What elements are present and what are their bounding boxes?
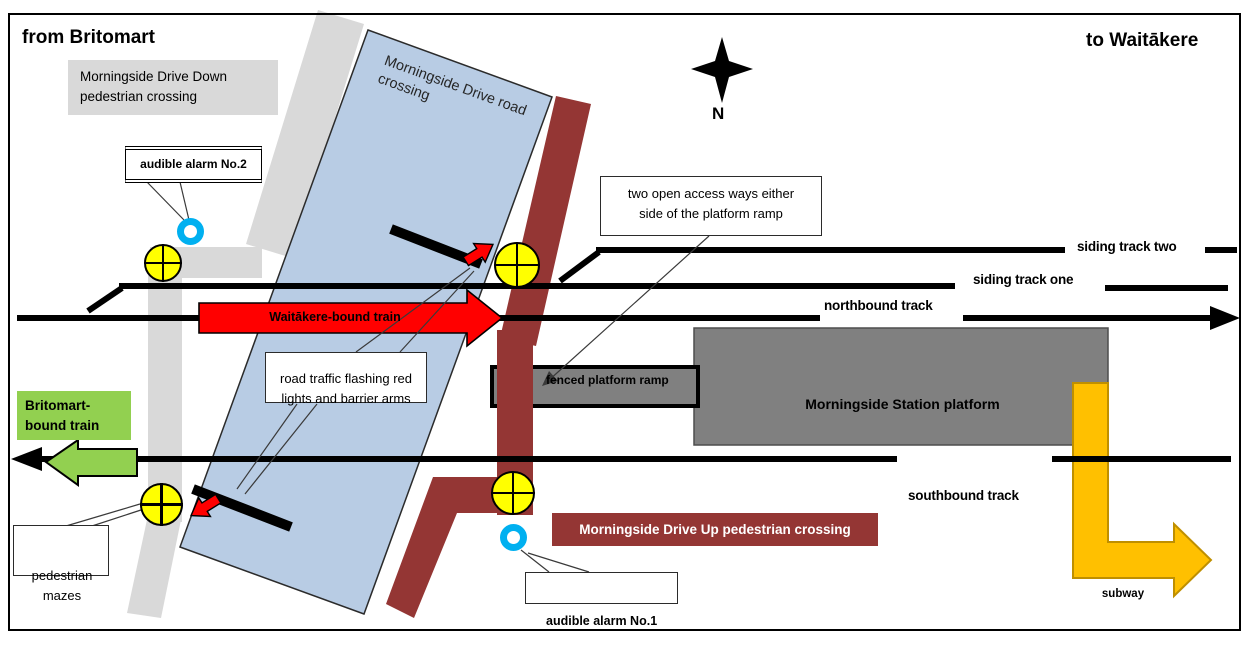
audible-alarm-1-icon — [500, 524, 527, 551]
audible-alarm-2-icon — [177, 218, 204, 245]
subway-label: subway — [1088, 588, 1158, 600]
britomart-train-label: Britomart-bound train — [17, 391, 131, 440]
mazes-callout-text: pedestrian mazes — [18, 566, 106, 605]
crossing-signal-southwest — [140, 483, 183, 526]
siding-track-one-label: siding track one — [973, 272, 1073, 287]
waitakere-train-label: Waitākere-bound train — [215, 310, 455, 324]
compass-north-label: N — [712, 104, 724, 124]
alarm2-callout-box: audible alarm No.2 — [125, 146, 262, 183]
down-crossing-label: Morningside Drive Down pedestrian crossi… — [68, 60, 278, 115]
crossing-signal-northwest — [144, 244, 182, 282]
northbound-track-label: northbound track — [824, 298, 933, 313]
siding-track-two-label: siding track two — [1077, 239, 1177, 254]
roadtraffic-callout-text: road traffic flashing red lights and bar… — [268, 369, 424, 408]
southbound-track-label: southbound track — [908, 488, 1019, 503]
crossing-signal-northeast — [494, 242, 540, 288]
alarm1-callout-text: audible alarm No.1 — [546, 614, 657, 628]
title-from: from Britomart — [22, 27, 155, 49]
crossing-signal-southeast — [491, 471, 535, 515]
up-crossing-label: Morningside Drive Up pedestrian crossing — [552, 513, 878, 546]
alarm1-callout-box — [525, 572, 678, 604]
platform-label: Morningside Station platform — [790, 396, 1015, 412]
diagram-canvas: from Britomart to Waitākere N Morningsid… — [0, 0, 1253, 649]
title-to: to Waitākere — [1086, 30, 1198, 52]
ramp-label: fenced platform ramp — [546, 373, 669, 387]
accessways-callout-text: two open access ways either side of the … — [616, 184, 806, 223]
